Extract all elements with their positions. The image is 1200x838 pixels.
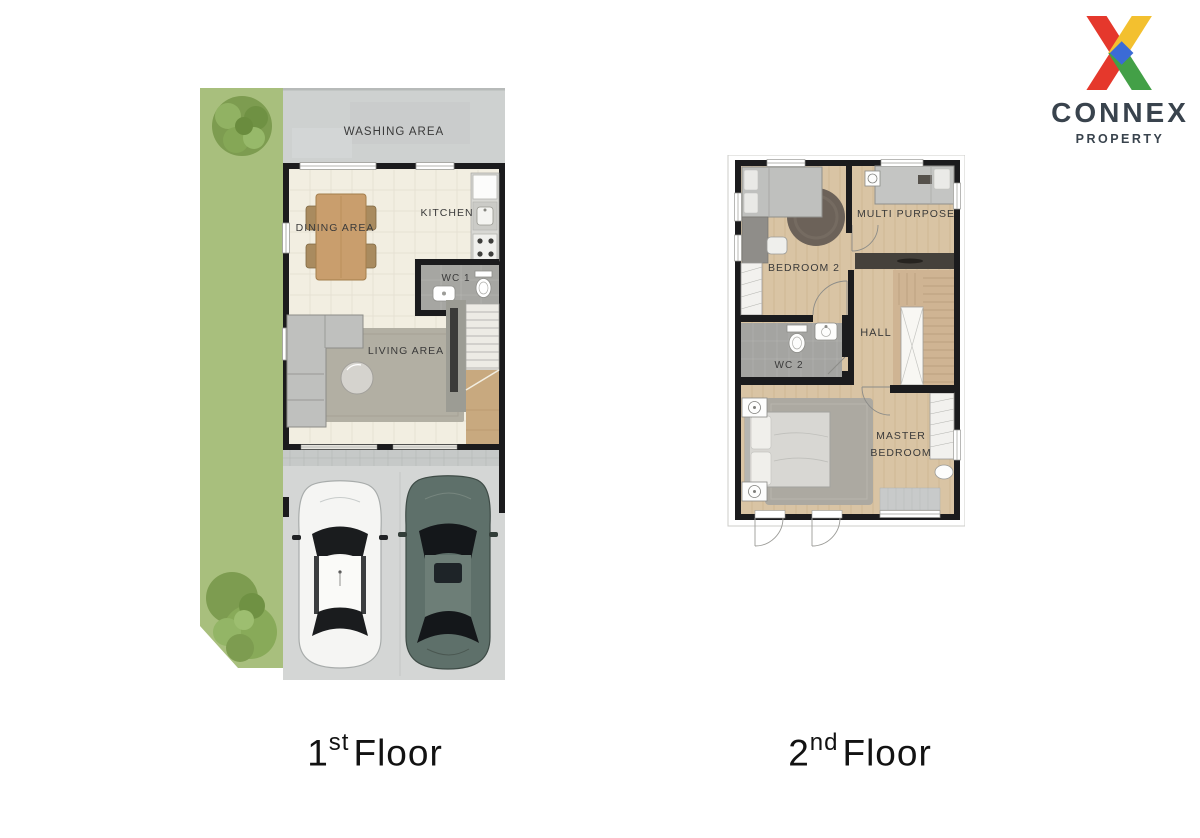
master-bedroom-label-line2: BEDROOM [870,447,931,459]
hall-label: HALL [860,327,892,339]
second-floor-caption: 2ndFloor [750,731,970,774]
multi-purpose-label: MULTI PURPOSE [857,208,955,220]
floor-number: 2 [788,732,810,773]
sink-icon [815,323,837,340]
dresser [742,217,768,263]
wardrobe [741,263,762,315]
terrace [283,450,505,466]
wardrobe [930,393,954,459]
ac-unit-icon [742,482,767,501]
toilet-icon [787,325,807,353]
washing-area: WASHING AREA [283,88,505,165]
car-green [398,476,498,669]
door-arc-icon [755,518,840,546]
wc2-label: WC 2 [775,360,804,371]
washing-area-label: WASHING AREA [344,126,444,138]
toilet-icon [475,271,492,298]
floor-ordinal: nd [810,729,839,756]
wc2: WC 2 [741,323,845,377]
connex-x-icon [1078,16,1162,90]
ac-unit-icon [742,398,767,417]
master-bedroom-label-line1: MASTER [876,430,926,442]
bed [745,412,830,487]
sliding-door-icon [283,444,505,450]
brand-tagline: PROPERTY [1046,132,1194,146]
multi-purpose-room: MULTI PURPOSE [852,166,955,269]
floorplan-sheet: WASHING AREA DINING AREA [0,0,1200,838]
garden [200,88,283,668]
bed [875,166,954,204]
floor-ordinal: st [329,729,350,756]
bedroom2-label: BEDROOM 2 [768,262,840,274]
second-floor-plan: BEDROOM 2 MULTI PURPOSE [725,155,965,550]
bed [742,167,822,217]
living-area-label: LIVING AREA [368,345,444,357]
chair [767,237,787,254]
floor-number: 1 [307,732,329,773]
floor-mat [880,488,940,510]
sink-icon [433,286,455,301]
floor-word: Floor [842,732,931,773]
floor-word: Floor [353,732,442,773]
living-area: LIVING AREA [287,315,464,427]
brand-name: CONNEX [1046,97,1194,129]
tree-icon [212,96,272,156]
stool [935,465,953,479]
car-white [292,481,388,668]
connex-logo: CONNEX PROPERTY [1046,16,1194,146]
sink-icon [473,202,497,230]
dining-area-label: DINING AREA [296,222,375,234]
wc1-label: WC 1 [442,273,471,284]
staircase [893,270,954,385]
fridge-icon [473,175,497,199]
first-floor-caption: 1stFloor [265,731,485,774]
kitchen-label: KITCHEN [420,207,473,219]
ac-unit-icon [865,171,880,186]
coffee-table [341,362,373,394]
first-floor-plan: WASHING AREA DINING AREA [200,88,505,680]
stove-icon [473,234,497,261]
